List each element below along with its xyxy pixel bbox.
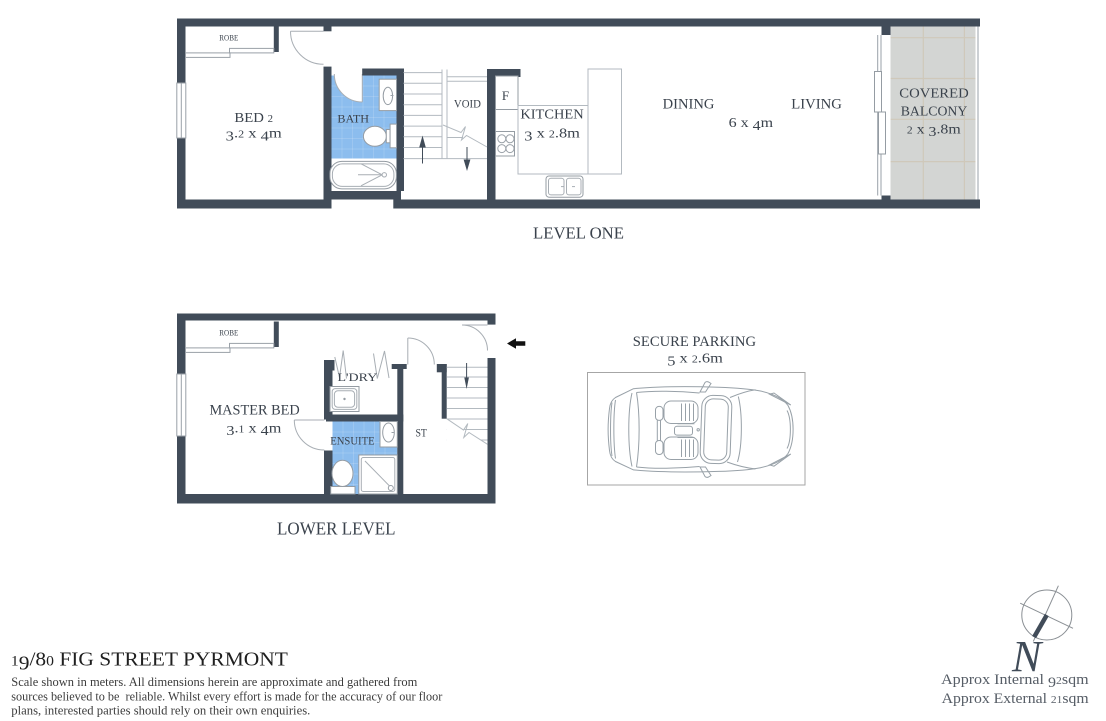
svg-text:L'DRY: L'DRY xyxy=(338,370,378,384)
svg-text:LOWER LEVEL: LOWER LEVEL xyxy=(277,519,396,539)
svg-text:MASTER BED: MASTER BED xyxy=(209,402,299,418)
svg-text:DINING: DINING xyxy=(663,96,715,112)
svg-text:plans, interested parties shou: plans, interested parties should rely on… xyxy=(11,703,310,718)
svg-text:BALCONY: BALCONY xyxy=(901,104,968,119)
svg-text:BATH: BATH xyxy=(337,112,369,126)
svg-text:ST: ST xyxy=(415,426,427,440)
svg-text:sources believed to be reliab: sources believed to be reliable. Whilst … xyxy=(11,688,443,703)
svg-text:VOID: VOID xyxy=(454,97,481,111)
svg-text:LEVEL ONE: LEVEL ONE xyxy=(533,224,624,243)
svg-text:COVERED: COVERED xyxy=(899,86,968,101)
svg-text:BED 2: BED 2 xyxy=(234,111,273,126)
svg-text:KITCHEN: KITCHEN xyxy=(520,106,583,122)
svg-text:SECURE PARKING: SECURE PARKING xyxy=(633,334,756,350)
svg-text:F: F xyxy=(502,88,509,103)
svg-text:N: N xyxy=(1011,632,1044,681)
svg-text:ROBE: ROBE xyxy=(219,33,238,43)
svg-text:Approx External 21sqm: Approx External 21sqm xyxy=(942,691,1089,707)
svg-text:ENSUITE: ENSUITE xyxy=(330,433,374,447)
svg-text:LIVING: LIVING xyxy=(791,96,842,112)
svg-text:Scale shown in meters. All dim: Scale shown in meters. All dimensions he… xyxy=(11,674,417,689)
svg-text:ROBE: ROBE xyxy=(219,328,238,338)
